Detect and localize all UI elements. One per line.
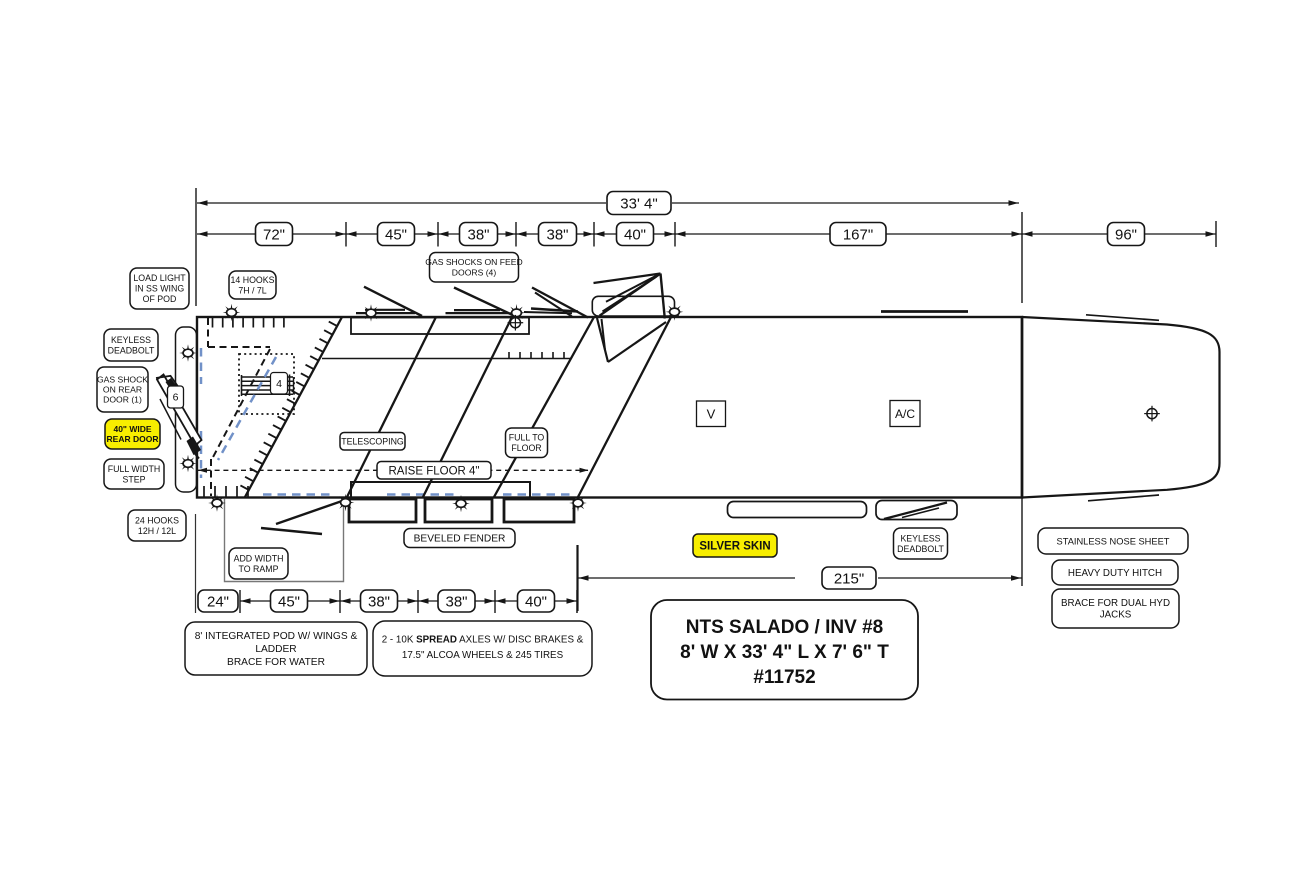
svg-text:NTS SALADO / INV #8: NTS SALADO / INV #8 [686,617,883,638]
svg-text:96": 96" [1115,226,1137,243]
svg-text:KEYLESS: KEYLESS [900,533,940,543]
svg-text:DOOR (1): DOOR (1) [103,395,142,405]
svg-text:2 - 10K SPREAD AXLES W/ DISC B: 2 - 10K SPREAD AXLES W/ DISC BRAKES & [382,635,584,646]
svg-text:FULL WIDTH: FULL WIDTH [108,464,160,474]
svg-text:38": 38" [368,593,390,610]
svg-text:24": 24" [207,593,229,610]
svg-text:GAS SHOCKS ON FEED: GAS SHOCKS ON FEED [425,257,522,267]
svg-text:72": 72" [263,226,285,243]
svg-text:FULL TO: FULL TO [509,433,545,443]
svg-text:12H / 12L: 12H / 12L [138,526,176,536]
svg-text:17.5" ALCOA WHEELS & 245 TIRES: 17.5" ALCOA WHEELS & 245 TIRES [402,650,564,661]
svg-text:33' 4": 33' 4" [620,195,657,212]
svg-text:TELESCOPING: TELESCOPING [341,436,404,446]
svg-text:6: 6 [173,392,179,404]
svg-text:40": 40" [525,593,547,610]
svg-text:40": 40" [624,226,646,243]
svg-text:24 HOOKS: 24 HOOKS [135,515,179,525]
svg-text:LOAD LIGHT: LOAD LIGHT [133,273,186,283]
svg-text:8' INTEGRATED POD W/ WINGS &: 8' INTEGRATED POD W/ WINGS & [195,631,358,642]
svg-text:HEAVY DUTY HITCH: HEAVY DUTY HITCH [1068,568,1162,579]
svg-text:38": 38" [467,226,489,243]
svg-text:FLOOR: FLOOR [511,443,541,453]
svg-text:45": 45" [278,593,300,610]
svg-text:38": 38" [445,593,467,610]
svg-text:REAR DOOR: REAR DOOR [107,434,159,444]
svg-text:TO RAMP: TO RAMP [239,564,279,574]
svg-text:KEYLESS: KEYLESS [111,335,151,345]
svg-text:4: 4 [276,378,282,390]
svg-text:BEVELED FENDER: BEVELED FENDER [414,534,506,545]
svg-text:#11752: #11752 [753,667,815,688]
svg-text:7H / 7L: 7H / 7L [238,285,266,295]
svg-text:RAISE FLOOR 4": RAISE FLOOR 4" [389,466,480,478]
svg-text:40" WIDE: 40" WIDE [113,424,151,434]
svg-text:45": 45" [385,226,407,243]
svg-text:A/C: A/C [895,407,915,421]
svg-text:14 HOOKS: 14 HOOKS [230,275,274,285]
svg-text:OF POD: OF POD [143,294,177,304]
svg-text:SILVER SKIN: SILVER SKIN [699,541,770,553]
svg-text:JACKS: JACKS [1100,610,1132,621]
svg-text:IN SS WING: IN SS WING [135,284,185,294]
svg-text:DEADBOLT: DEADBOLT [108,345,155,355]
svg-text:STAINLESS NOSE SHEET: STAINLESS NOSE SHEET [1057,536,1170,546]
svg-text:LADDER: LADDER [255,644,296,655]
svg-text:ON REAR: ON REAR [103,385,142,395]
svg-text:215": 215" [834,570,864,587]
svg-text:DEADBOLT: DEADBOLT [897,544,944,554]
svg-text:STEP: STEP [123,474,146,484]
svg-text:V: V [707,407,716,422]
svg-text:DOORS (4): DOORS (4) [452,267,497,277]
svg-text:GAS SHOCK: GAS SHOCK [97,374,148,384]
svg-text:8' W X 33' 4" L X 7' 6" T: 8' W X 33' 4" L X 7' 6" T [680,642,889,663]
svg-text:38": 38" [546,226,568,243]
svg-text:ADD WIDTH: ADD WIDTH [234,553,284,563]
svg-text:BRACE FOR WATER: BRACE FOR WATER [227,657,325,668]
svg-text:BRACE FOR DUAL HYD: BRACE FOR DUAL HYD [1061,598,1170,609]
svg-text:167": 167" [843,226,873,243]
